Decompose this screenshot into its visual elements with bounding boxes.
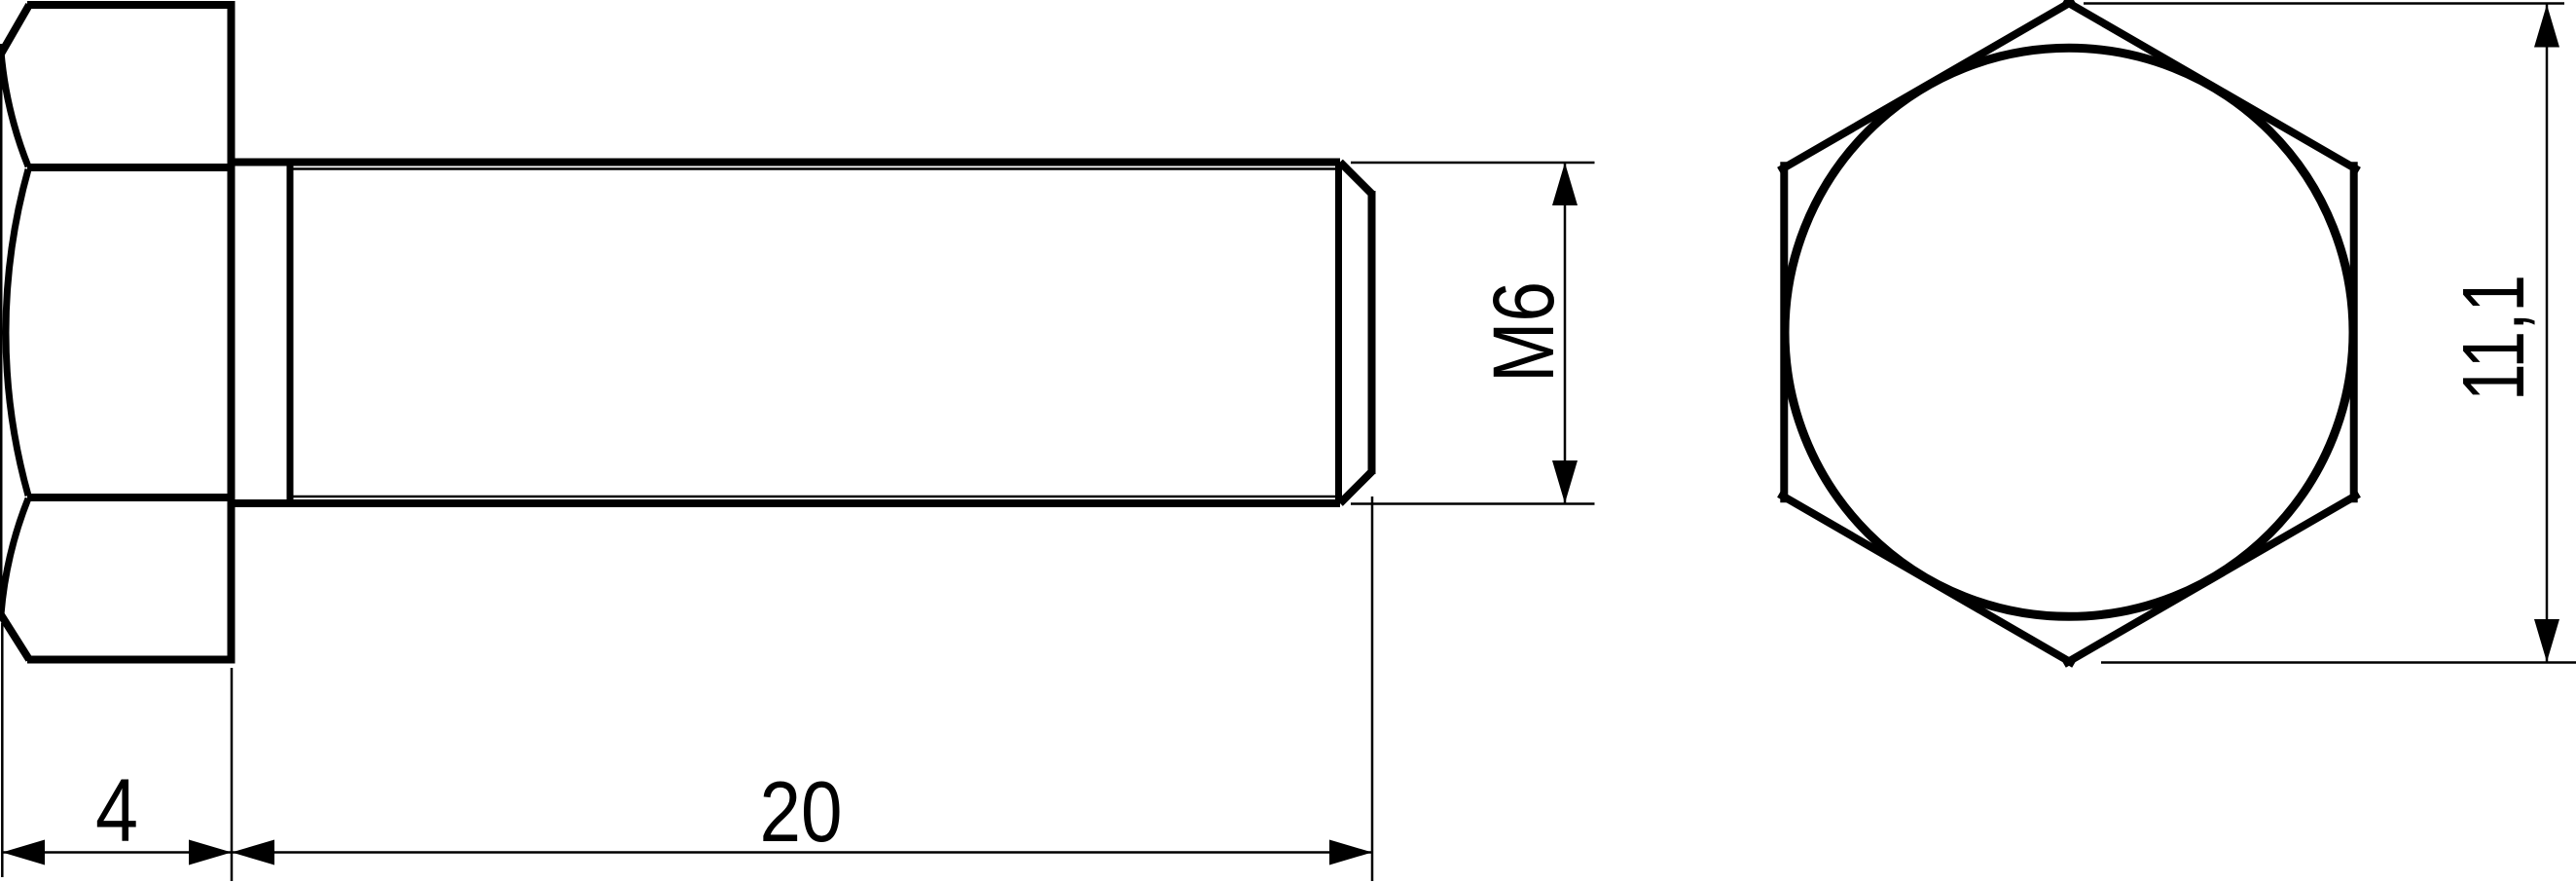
svg-text:11,1: 11,1: [2446, 275, 2543, 401]
svg-text:20: 20: [760, 763, 843, 860]
svg-text:4: 4: [95, 761, 138, 861]
svg-text:M6: M6: [1474, 281, 1572, 383]
